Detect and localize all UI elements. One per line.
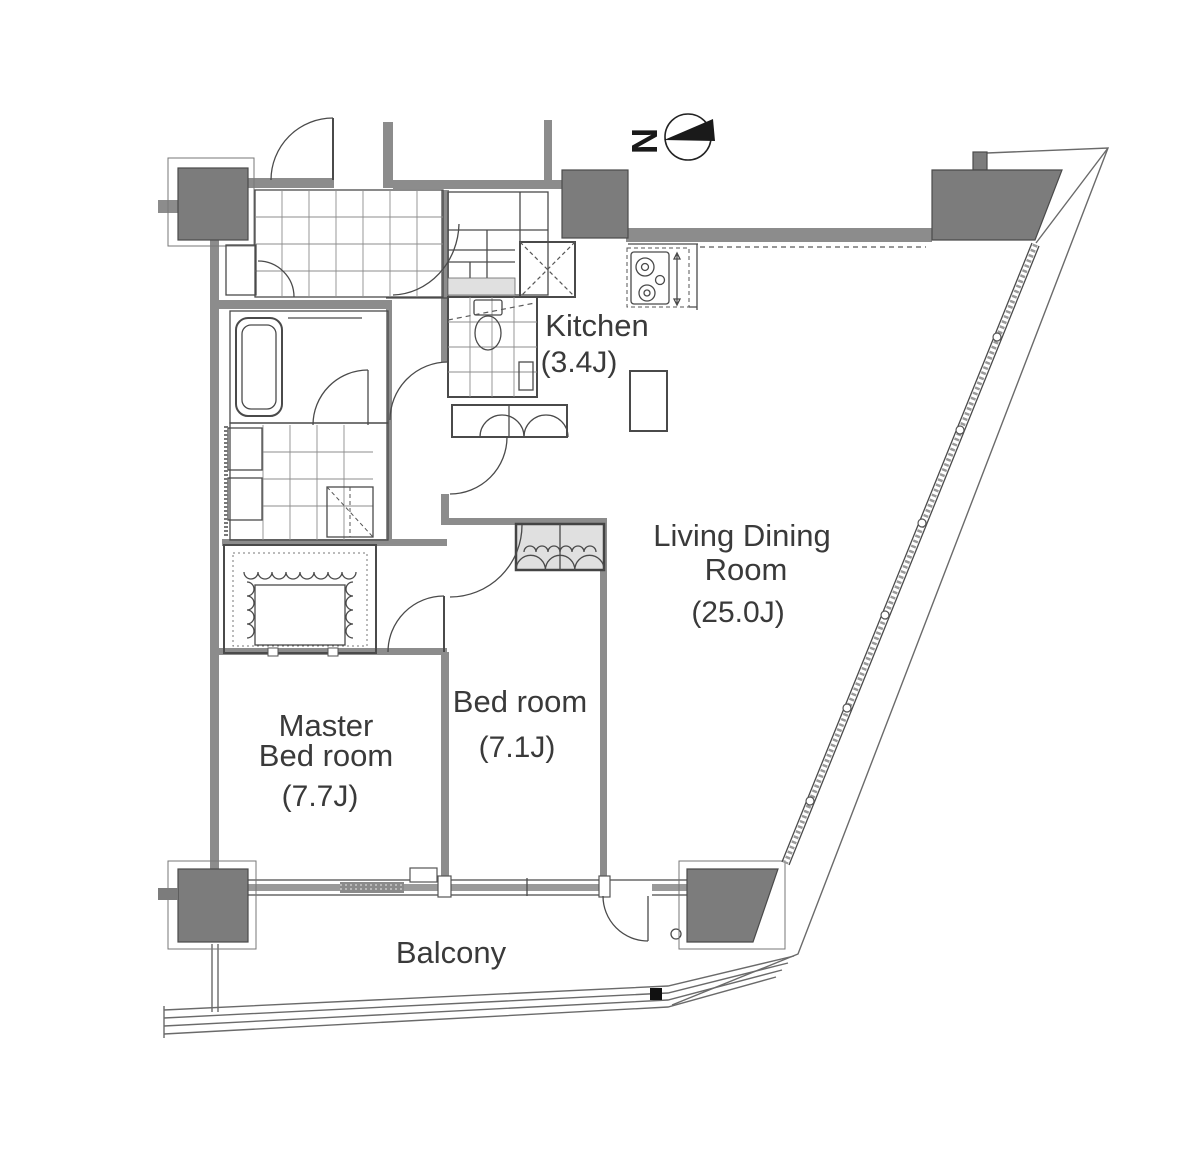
genkan-floor (255, 190, 443, 297)
kitchen-counter-folding-doors (480, 415, 568, 437)
floor-plan-drawing: N Kitchen (3.4J) Living Dining Room (25.… (0, 0, 1182, 1152)
wc-room (448, 297, 537, 397)
washing-machine-diagonal (327, 487, 373, 537)
balcony-label: Balcony (396, 935, 507, 970)
stove-burner-2-center (644, 290, 650, 296)
counter-length-arrow (674, 253, 680, 305)
floor-plan-page: N Kitchen (3.4J) Living Dining Room (25.… (0, 0, 1182, 1152)
stove-burner-2 (639, 285, 655, 301)
entrance-area (226, 118, 459, 298)
living-dining-size: (25.0J) (691, 596, 784, 629)
walls (158, 120, 932, 891)
column-top-right (932, 170, 1062, 240)
wall-south-band (248, 884, 609, 891)
balcony-railing-black-mark (650, 988, 662, 1000)
bathtub-outer (236, 318, 282, 416)
wall-bottom-left-stub (158, 888, 178, 900)
bathroom (230, 311, 388, 425)
column-top-left (178, 168, 248, 240)
master-bedroom-door (388, 596, 444, 652)
wic-door-tab-left (268, 648, 278, 656)
wc-door-swing-dash (448, 303, 535, 320)
wic-door-tab-right (328, 648, 338, 656)
south-window-hatch (340, 882, 404, 893)
ld-balcony-door-arc (603, 896, 648, 941)
walk-in-closet (224, 545, 376, 656)
wall-bedroom-right (600, 518, 607, 882)
balcony-left-wall (212, 944, 218, 1012)
entry-closet (226, 245, 256, 295)
storage-lower-band (448, 278, 515, 295)
wc-hand-basin (519, 362, 533, 390)
kitchen-label: Kitchen (545, 308, 648, 343)
window-wall-outer-line (789, 246, 1039, 865)
column-top-right-stub (973, 152, 987, 170)
master-door-arc (388, 596, 444, 652)
south-wall-end-master (438, 876, 451, 897)
column-bottom-right (687, 869, 778, 942)
kitchen-right-edge (689, 244, 697, 310)
wic-center-cabinet (255, 585, 345, 645)
bedroom-size: (7.1J) (479, 731, 556, 764)
south-wall-details (248, 868, 687, 897)
bathroom-box (230, 311, 388, 423)
stove-burner-3 (656, 276, 665, 285)
bedroom-label: Bed room (453, 684, 587, 719)
ld-window-wall (782, 243, 1039, 865)
columns (158, 152, 1062, 949)
entrance-door-arc (271, 118, 333, 180)
wall-north-ld (626, 228, 932, 242)
column-bottom-left (178, 869, 248, 942)
storage-block (448, 192, 575, 297)
column-top-center (562, 170, 628, 238)
wic-hanger-col-right (346, 582, 353, 638)
balcony-outline (164, 148, 1108, 1038)
wall-corridor-left (386, 309, 392, 542)
bedroom (450, 524, 604, 597)
compass: N (624, 114, 715, 160)
wic-hanger-row-top (244, 572, 356, 579)
wall-divider-mid (441, 494, 449, 525)
wall-entry-right (393, 180, 564, 189)
washroom-box (230, 423, 388, 540)
living-dining-label-line1: Living Dining (653, 518, 831, 553)
south-wall-pillar-bump (410, 868, 437, 882)
wall-pipe-stub (544, 120, 552, 182)
wall-west (210, 238, 219, 871)
toilet-bowl (475, 316, 501, 350)
compass-north-label: N (624, 128, 665, 154)
bathroom-door-arc (313, 370, 368, 425)
master-bedroom-size: (7.7J) (282, 780, 359, 813)
wall-south-right (652, 884, 688, 891)
washroom-tile-grid (263, 425, 373, 540)
entry-closet-door-arc (258, 261, 294, 297)
washer-space (228, 478, 262, 520)
living-dining-label-line2: Room (705, 552, 788, 587)
bedroom-door-arc (450, 525, 522, 597)
kitchen-size: (3.4J) (541, 346, 618, 379)
stove-burner-1 (636, 258, 654, 276)
wall-divider-lower (441, 652, 449, 882)
wall-entry-left (246, 178, 334, 188)
bathtub-inner (242, 325, 276, 409)
master-bedroom-label-line2: Bed room (259, 738, 393, 773)
wall-bath-top (210, 300, 392, 309)
washroom (226, 423, 388, 540)
wic-box (224, 545, 376, 653)
wc-tile-grid (448, 297, 537, 397)
wall-porch-stub (383, 122, 393, 188)
genkan-tile-grid (255, 190, 443, 297)
vanity-unit (228, 428, 262, 470)
refrigerator-space (630, 371, 667, 431)
washroom-door-arc (390, 362, 448, 420)
wic-hanger-col-left (247, 582, 254, 638)
ld-balcony-door (603, 896, 648, 941)
kitchen-door-arc (450, 437, 507, 494)
stove-counter-dashed (627, 248, 689, 307)
south-wall-end-bedroom (599, 876, 610, 897)
stove-burner-1-center (642, 264, 649, 271)
